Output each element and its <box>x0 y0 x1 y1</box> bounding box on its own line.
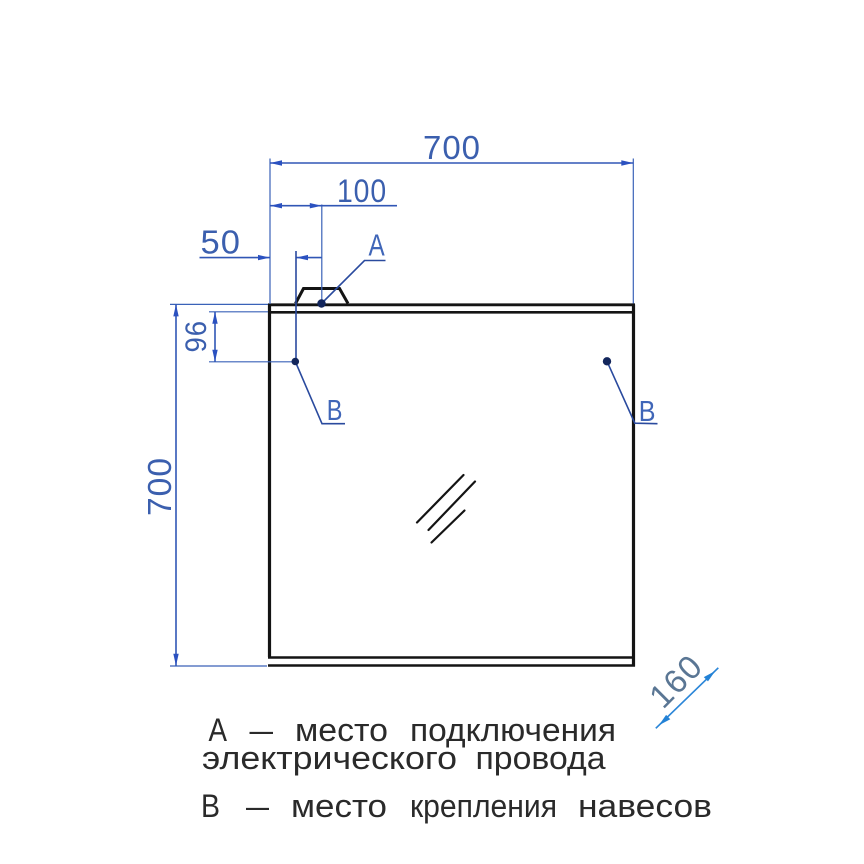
svg-text:700: 700 <box>141 457 178 516</box>
svg-text:100: 100 <box>337 173 387 209</box>
svg-text:700: 700 <box>423 129 481 166</box>
svg-text:A: A <box>369 229 386 263</box>
svg-text:электрическогопровода: электрическогопровода <box>202 740 606 776</box>
svg-text:96: 96 <box>180 320 213 353</box>
svg-text:B: B <box>327 395 344 427</box>
svg-text:50: 50 <box>201 224 242 261</box>
